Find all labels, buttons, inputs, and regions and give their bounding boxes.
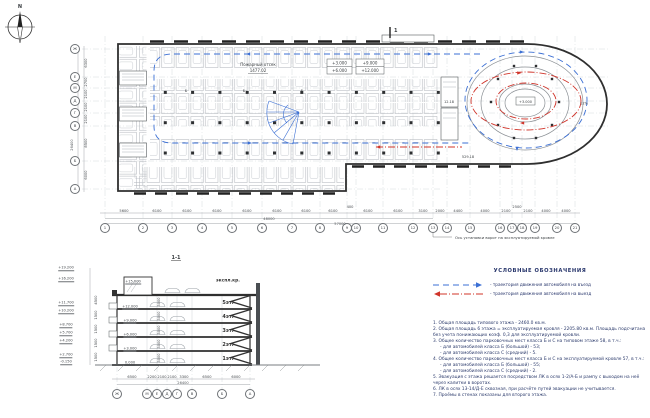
dimension-label: 2100 (84, 114, 88, 123)
right-screen-wall (256, 283, 260, 365)
floor-label: 3эт. (222, 328, 233, 334)
axis-bubble: В (187, 389, 197, 399)
axis-bubble: М (142, 389, 152, 399)
level-box1-lower: +6.000 (332, 68, 347, 73)
legend-exit-row: - траектория движения автомобиля на выез… (432, 289, 648, 298)
dimension-label: 2100 (84, 89, 88, 98)
elevation-mark: +9.000 (123, 319, 136, 324)
section-dims-total: 26400 (177, 381, 188, 385)
axis-bubble: Ж (70, 44, 80, 54)
gate-axis-note-text: Ось установки ворот на эксплуатируемой к… (455, 235, 555, 240)
dimension-label: 8500 (84, 138, 88, 147)
axis-bubble: 4 (197, 223, 207, 233)
dimension-label: 6100 (301, 209, 310, 213)
dimension-label: 4400 (453, 209, 462, 213)
dimension-label: 6300 (84, 58, 88, 67)
axis-bubble: 21 (570, 223, 580, 233)
axis-bubble: 5 (227, 223, 237, 233)
axis-bubble: 15 (465, 223, 475, 233)
dimension-label: 2700 (84, 77, 88, 86)
note-item: 2. Общая площадь 6 этажа = эксплуатируем… (433, 327, 646, 339)
floor-label: экспл.кр. (216, 279, 240, 284)
room-area-small: 12.18 (444, 100, 454, 104)
dimension-label: 6000 (84, 170, 88, 179)
gate-axis-note: Ось установки ворот на эксплуатируемой к… (433, 233, 555, 240)
axis-bubble: А (70, 184, 80, 194)
fire-compartment-label: Пожарный отсек (240, 62, 276, 67)
elevation-mark: +11.700 (58, 300, 74, 306)
level-box1-upper: +3.000 (332, 61, 347, 66)
ramp-service-rooms (441, 77, 458, 140)
elevation-mark: -0.150 (60, 359, 72, 365)
elevation-mark: +2.700 (59, 352, 72, 358)
dimension-label: 5600 (119, 209, 128, 213)
dimension-label: 6100 (242, 209, 251, 213)
axis-bubble: 20 (552, 223, 562, 233)
axis-bubble: Ж (112, 389, 122, 399)
dimension-label: 1500 (94, 352, 98, 361)
dimension-label: 4500 (94, 295, 98, 304)
legend-entry-label: - траектория движения автомобиля на въез… (490, 282, 591, 287)
north-label: N (18, 4, 22, 10)
left-parapet (112, 290, 117, 295)
dimension-label: 2100 (501, 209, 510, 213)
section-title: 1-1 (171, 255, 181, 261)
stair-cores (120, 71, 147, 157)
level-box2-lower: +12.000 (361, 68, 379, 73)
note-item: 7. Проёмы в стенах показаны для второго … (433, 393, 646, 399)
dimension-label: 1500 (94, 338, 98, 347)
axis-bubble: Г (70, 108, 80, 118)
dimension-label: 2100 (167, 375, 176, 379)
elevation-mark: +10.200 (58, 308, 74, 314)
dimension-label: 400 (347, 205, 354, 209)
level-box-1: +3.000 +6.000 (327, 59, 352, 74)
dimension-label: 3300 (179, 375, 188, 379)
axis-bubble: 6 (257, 223, 267, 233)
axis-bubble: Д (162, 389, 172, 399)
axis-bubble: 12 (408, 223, 418, 233)
axis-bubble: 1 (100, 223, 110, 233)
axis-bubble: 7 (287, 223, 297, 233)
dimension-label: 1500 (94, 310, 98, 319)
plan-dims-total: 57000 (334, 222, 345, 226)
dimension-label: 6100 (212, 209, 221, 213)
dimension-label: 1500 (94, 324, 98, 333)
elevation-mark: +16.200 (58, 276, 74, 282)
entry-route-swatch (432, 281, 484, 289)
ramp-center-level: +3.000 (519, 100, 532, 104)
floor-label: 4эт. (222, 314, 233, 320)
general-notes: 1. Общая площадь типового этажа - 2460.0… (433, 321, 646, 399)
elevation-mark: +5.700 (59, 330, 72, 336)
axis-bubble: В (70, 121, 80, 131)
legend-exit-label: - траектория движения автомобиля на выез… (490, 291, 591, 296)
legend-entry-row: - траектория движения автомобиля на въез… (432, 280, 648, 289)
dimension-label: 3000 (157, 325, 161, 334)
dimension-label: 2000 (435, 209, 444, 213)
axis-bubble: Г (172, 389, 182, 399)
axis-bubble: 3 (167, 223, 177, 233)
elevation-mark: +6.000 (123, 333, 136, 338)
dimension-label: 4000 (541, 209, 550, 213)
dimension-label: 2100 (157, 375, 166, 379)
axis-bubble: 14 (442, 223, 452, 233)
axis-bubble: 19 (530, 223, 540, 233)
dimension-label: 3100 (418, 209, 427, 213)
drawing-sheet: N (0, 0, 650, 418)
dimension-label: 6100 (272, 209, 281, 213)
dimension-label: 6100 (393, 209, 402, 213)
axis-bubble: 8 (315, 223, 325, 233)
elevation-mark: +19.200 (58, 265, 74, 271)
note-item: 5. Эвакуация с этажа решается посредство… (433, 375, 646, 387)
stair-flights (231, 295, 252, 364)
floor-label: 5эт. (222, 300, 233, 306)
dimension-label: 6500 (127, 375, 136, 379)
axis-bubble: 17 (507, 223, 517, 233)
axis-bubble: 13 (428, 223, 438, 233)
dimension-label: 3000 (157, 339, 161, 348)
dimension-label: 6500 (202, 375, 211, 379)
axis-bubble: 16 (495, 223, 505, 233)
facade-louvers (109, 303, 117, 351)
north-compass: N (5, 4, 35, 43)
elevation-mark: +15.000 (125, 280, 141, 285)
fire-compartment-area: 1477.02 (250, 68, 267, 73)
axis-bubble: Е (152, 389, 162, 399)
level-box-2: +9.000 +12.000 (356, 59, 384, 74)
dimension-label: 2100 (84, 102, 88, 111)
elevation-mark: +12.000 (122, 305, 138, 310)
dimension-label: 4000 (480, 209, 489, 213)
dimension-label: 6100 (328, 209, 337, 213)
floor-label: 1эт. (222, 356, 233, 362)
elevation-mark: 0.000 (125, 361, 135, 366)
dimension-label: 3000 (157, 311, 161, 320)
legend-title: УСЛОВНЫЕ ОБОЗНАЧЕНИЯ (432, 268, 648, 274)
axis-bubble: Б (70, 156, 80, 166)
axis-bubble: А (245, 389, 255, 399)
dimension-label: 2200 (147, 375, 156, 379)
dimension-label: 6000 (231, 375, 240, 379)
dimension-label: 6100 (363, 209, 372, 213)
elevation-mark: +4.200 (59, 338, 72, 344)
dimension-label: 6100 (152, 209, 161, 213)
dimension-label: 3000 (157, 353, 161, 362)
ramp-slope-label: 12% (580, 102, 588, 106)
section-mark-number: 1 (394, 28, 398, 34)
dimension-label: 4000 (561, 209, 570, 213)
axis-bubble: 11 (378, 223, 388, 233)
axis-bubble: Д (70, 96, 80, 106)
plan-dims-left-total: 26400 (70, 139, 74, 150)
dimension-label: 3000 (157, 297, 161, 306)
axis-bubble: Е (70, 72, 80, 82)
axis-bubble: 2 (138, 223, 148, 233)
axis-bubble: М (70, 83, 80, 93)
plan-dims-subtotal: 48000 (263, 217, 274, 221)
axis-bubble: Б (217, 389, 227, 399)
exit-route-swatch (432, 290, 484, 298)
elevation-mark: +8.700 (59, 322, 72, 328)
floor-label: 2эт. (222, 342, 233, 348)
axis-bubble: 10 (351, 223, 361, 233)
elevation-mark: +3.000 (123, 347, 136, 352)
dimension-label: 2500 (512, 205, 521, 209)
room-area-large: 529.18 (462, 155, 474, 159)
axis-bubble: 18 (517, 223, 527, 233)
legend: УСЛОВНЫЕ ОБОЗНАЧЕНИЯ - траектория движен… (432, 268, 648, 298)
level-box2-upper: +9.000 (363, 61, 378, 66)
dimension-label: 2100 (523, 209, 532, 213)
dimension-label: 6100 (182, 209, 191, 213)
